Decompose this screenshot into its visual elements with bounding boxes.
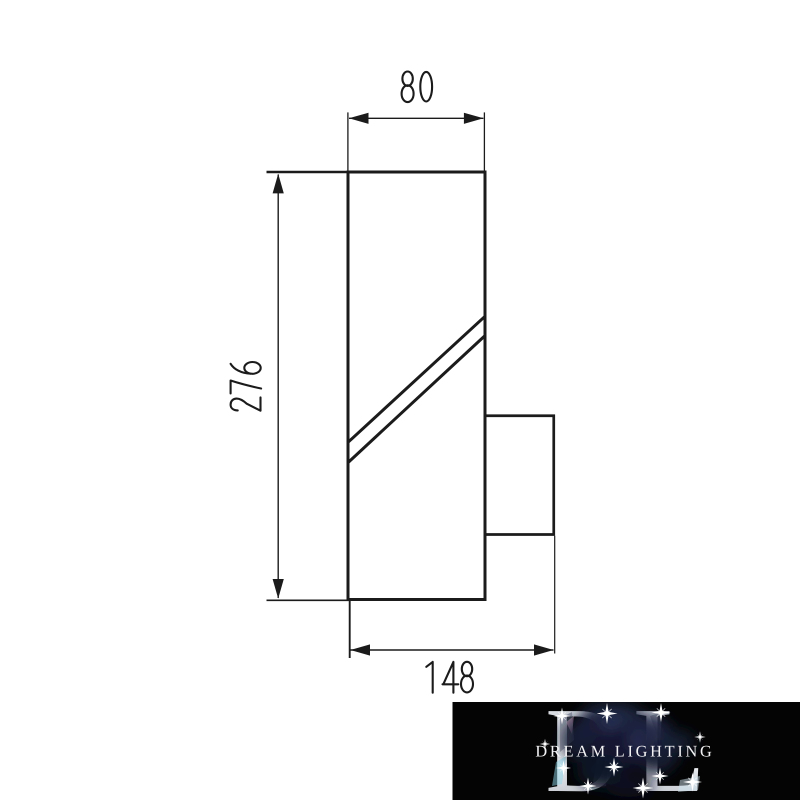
svg-text:DREAM LIGHTING: DREAM LIGHTING [535, 742, 714, 761]
